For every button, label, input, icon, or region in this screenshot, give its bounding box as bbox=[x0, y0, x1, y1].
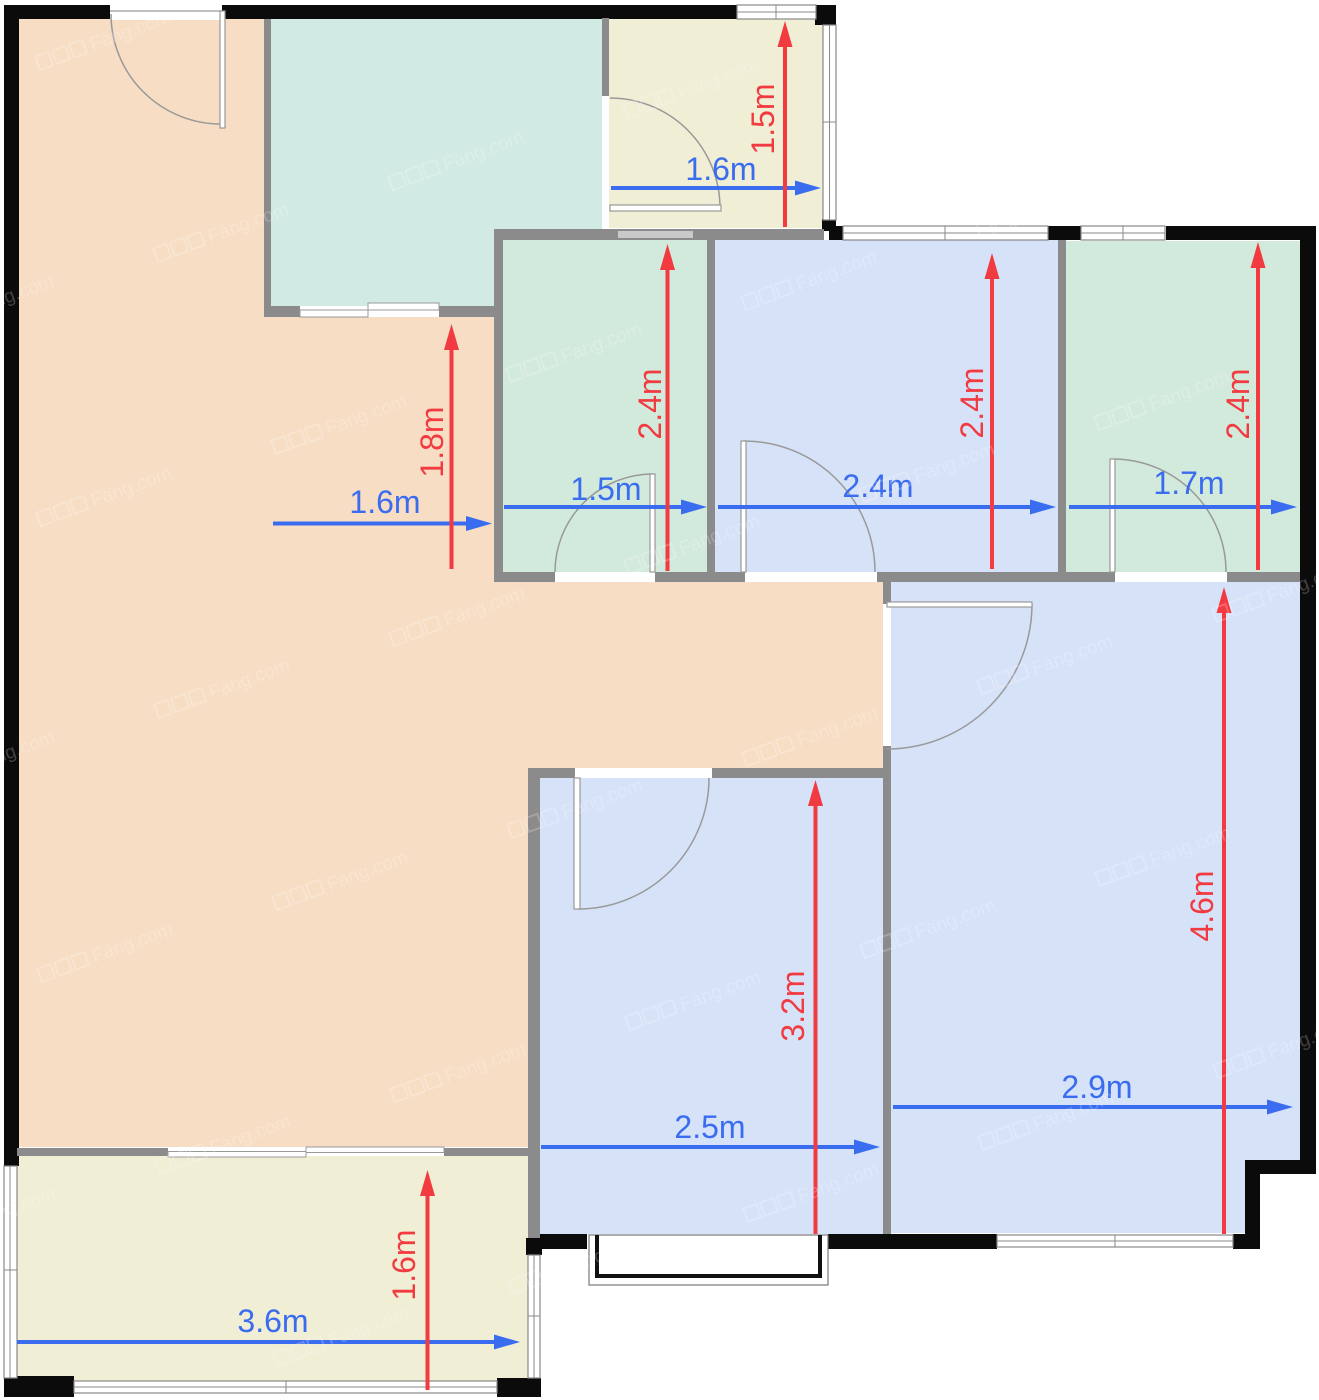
svg-text:1.5m: 1.5m bbox=[570, 471, 641, 507]
svg-text:1.6m: 1.6m bbox=[349, 484, 420, 520]
svg-text:1.5m: 1.5m bbox=[745, 83, 781, 154]
svg-text:2.4m: 2.4m bbox=[954, 367, 990, 438]
svg-text:1.8m: 1.8m bbox=[414, 406, 450, 477]
svg-text:1.7m: 1.7m bbox=[1153, 465, 1224, 501]
svg-text:2.4m: 2.4m bbox=[632, 368, 668, 439]
svg-text:1.6m: 1.6m bbox=[685, 151, 756, 187]
svg-text:1.6m: 1.6m bbox=[386, 1229, 422, 1300]
svg-text:4.6m: 4.6m bbox=[1184, 870, 1220, 941]
svg-text:3.6m: 3.6m bbox=[237, 1303, 308, 1339]
svg-text:2.5m: 2.5m bbox=[674, 1109, 745, 1145]
svg-text:3.2m: 3.2m bbox=[775, 970, 811, 1041]
